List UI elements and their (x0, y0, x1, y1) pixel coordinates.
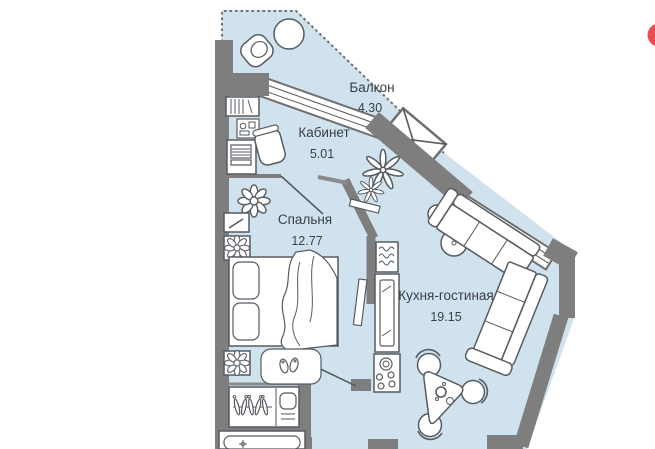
bathtub (219, 431, 305, 449)
bottom-wall-stub-2 (368, 439, 398, 449)
bottom-wall-stub-3 (487, 435, 523, 449)
kitchen-furniture (374, 242, 400, 392)
room-label-balcony: Балкон (349, 80, 394, 95)
basket (280, 393, 296, 409)
floorplan-page: Балкон 4.30 Кабинет 5.01 Спальня 12.77 К… (0, 0, 655, 449)
table-fan-icon (224, 350, 249, 375)
room-area-office: 5.01 (310, 147, 334, 161)
blanket (281, 250, 337, 350)
room-label-bedroom: Спальня (278, 212, 332, 227)
room-area-balcony: 4.30 (358, 101, 382, 115)
room-area-kitchen-living: 19.15 (430, 310, 461, 324)
favorite-badge[interactable] (648, 24, 655, 47)
room-label-office: Кабинет (298, 125, 349, 140)
balcony-table (274, 19, 304, 49)
pillow (233, 303, 259, 340)
wardrobe (229, 387, 299, 427)
room-area-bedroom: 12.77 (291, 234, 322, 248)
floor-plan: Балкон 4.30 Кабинет 5.01 Спальня 12.77 К… (0, 0, 655, 449)
dining-chair (462, 381, 485, 404)
pillow (233, 262, 259, 299)
radiator (376, 242, 398, 272)
room-label-kitchen-living: Кухня-гостиная (398, 288, 494, 303)
